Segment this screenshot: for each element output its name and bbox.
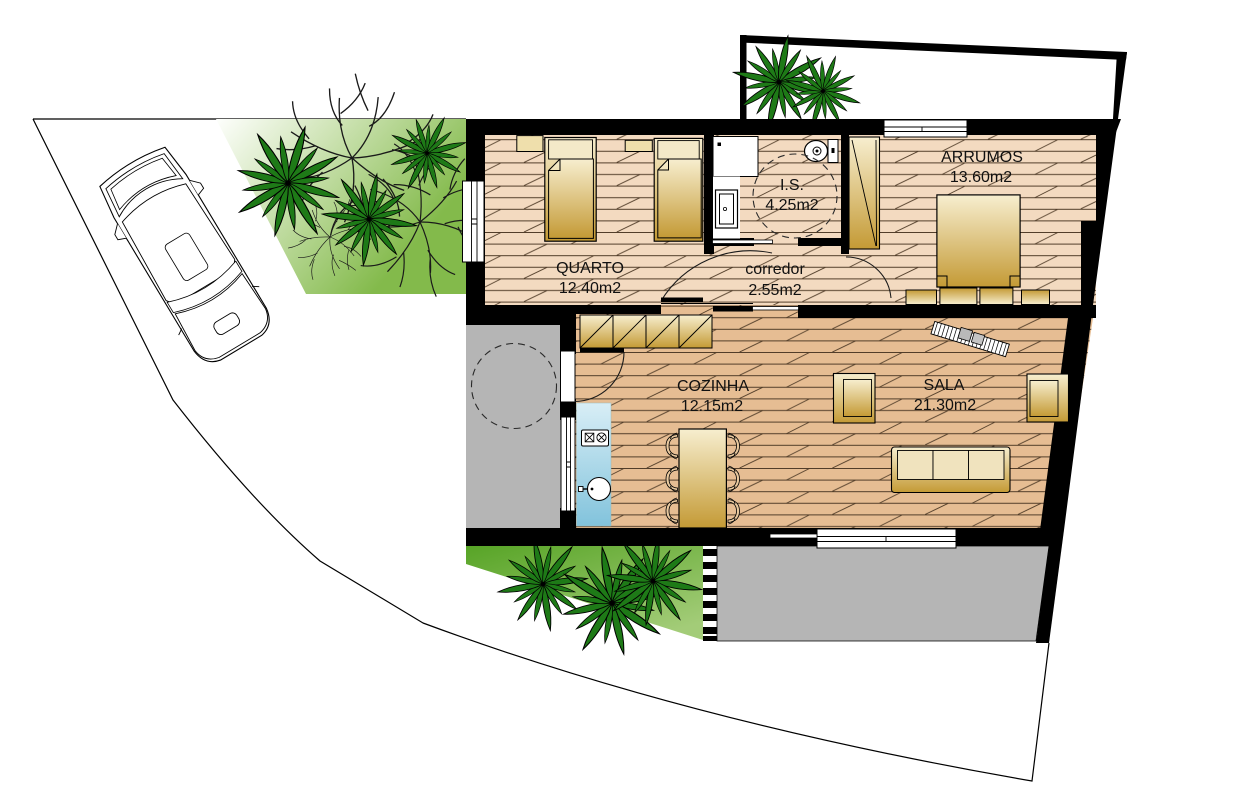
svg-text:21.30m2: 21.30m2 [914, 397, 976, 414]
svg-text:QUARTO: QUARTO [556, 260, 624, 277]
svg-text:2.55m2: 2.55m2 [748, 282, 801, 299]
svg-text:SALA: SALA [924, 377, 965, 394]
svg-text:ARRUMOS: ARRUMOS [941, 149, 1023, 166]
svg-text:12.40m2: 12.40m2 [559, 280, 621, 297]
svg-text:COZINHA: COZINHA [677, 378, 749, 395]
svg-text:13.60m2: 13.60m2 [950, 169, 1012, 186]
svg-text:corredor: corredor [745, 261, 805, 278]
svg-text:I.S.: I.S. [780, 177, 804, 194]
svg-text:12.15m2: 12.15m2 [681, 398, 743, 415]
svg-text:4.25m2: 4.25m2 [765, 197, 818, 214]
